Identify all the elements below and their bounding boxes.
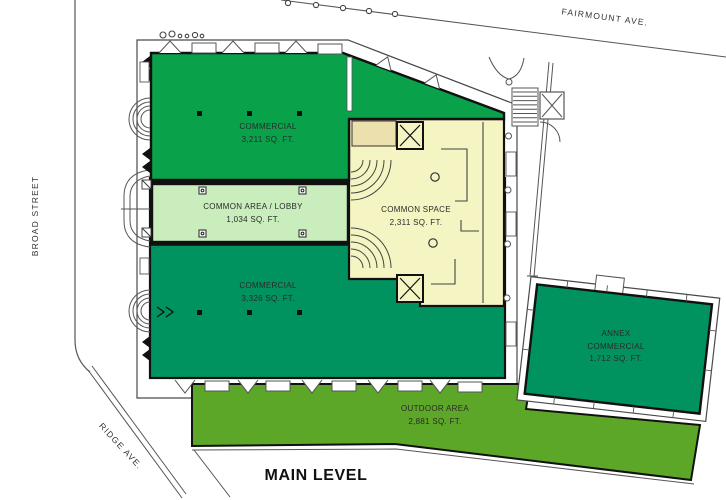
zone-name: ANNEX COMMERCIAL: [585, 328, 647, 353]
zone-label-annex-commercial: ANNEX COMMERCIAL 1,712 SQ. FT.: [585, 328, 647, 366]
vestibule-patch: [352, 121, 396, 146]
street-label-broad: BROAD STREET: [30, 176, 40, 257]
zone-name: COMMON SPACE: [346, 204, 486, 217]
zone-area: 2,881 SQ. FT.: [355, 416, 515, 429]
zone-label-commercial-south: COMMERCIAL 3,326 SQ. FT.: [188, 280, 348, 305]
zone-name: COMMON AREA / LOBBY: [163, 201, 343, 214]
zone-name: COMMERCIAL: [188, 280, 348, 293]
elevator-upper-icon: [397, 122, 423, 149]
wall-slot: [347, 57, 352, 111]
zone-label-common-space: COMMON SPACE 2,311 SQ. FT.: [346, 204, 486, 229]
site-tree-markers: [160, 0, 398, 38]
zone-area: 3,211 SQ. FT.: [188, 134, 348, 147]
zone-area: 1,034 SQ. FT.: [163, 214, 343, 227]
zone-area: 1,712 SQ. FT.: [585, 353, 647, 366]
zone-label-outdoor-area: OUTDOOR AREA 2,881 SQ. FT.: [355, 403, 515, 428]
elevator-lower-icon: [397, 275, 423, 302]
zone-name: OUTDOOR AREA: [355, 403, 515, 416]
street-line-broad: [75, 0, 90, 372]
floor-plan-page: COMMERCIAL 3,211 SQ. FT. COMMON AREA / L…: [0, 0, 726, 500]
zone-label-commercial-north: COMMERCIAL 3,211 SQ. FT.: [188, 121, 348, 146]
zone-area: 2,311 SQ. FT.: [346, 217, 486, 230]
plan-title: MAIN LEVEL: [265, 467, 368, 485]
exterior-stair-icon: [512, 88, 538, 126]
zone-label-common-lobby: COMMON AREA / LOBBY 1,034 SQ. FT.: [163, 201, 343, 226]
exterior-elevator-icon: [540, 92, 564, 119]
zone-name: COMMERCIAL: [188, 121, 348, 134]
zone-area: 3,326 SQ. FT.: [188, 293, 348, 306]
